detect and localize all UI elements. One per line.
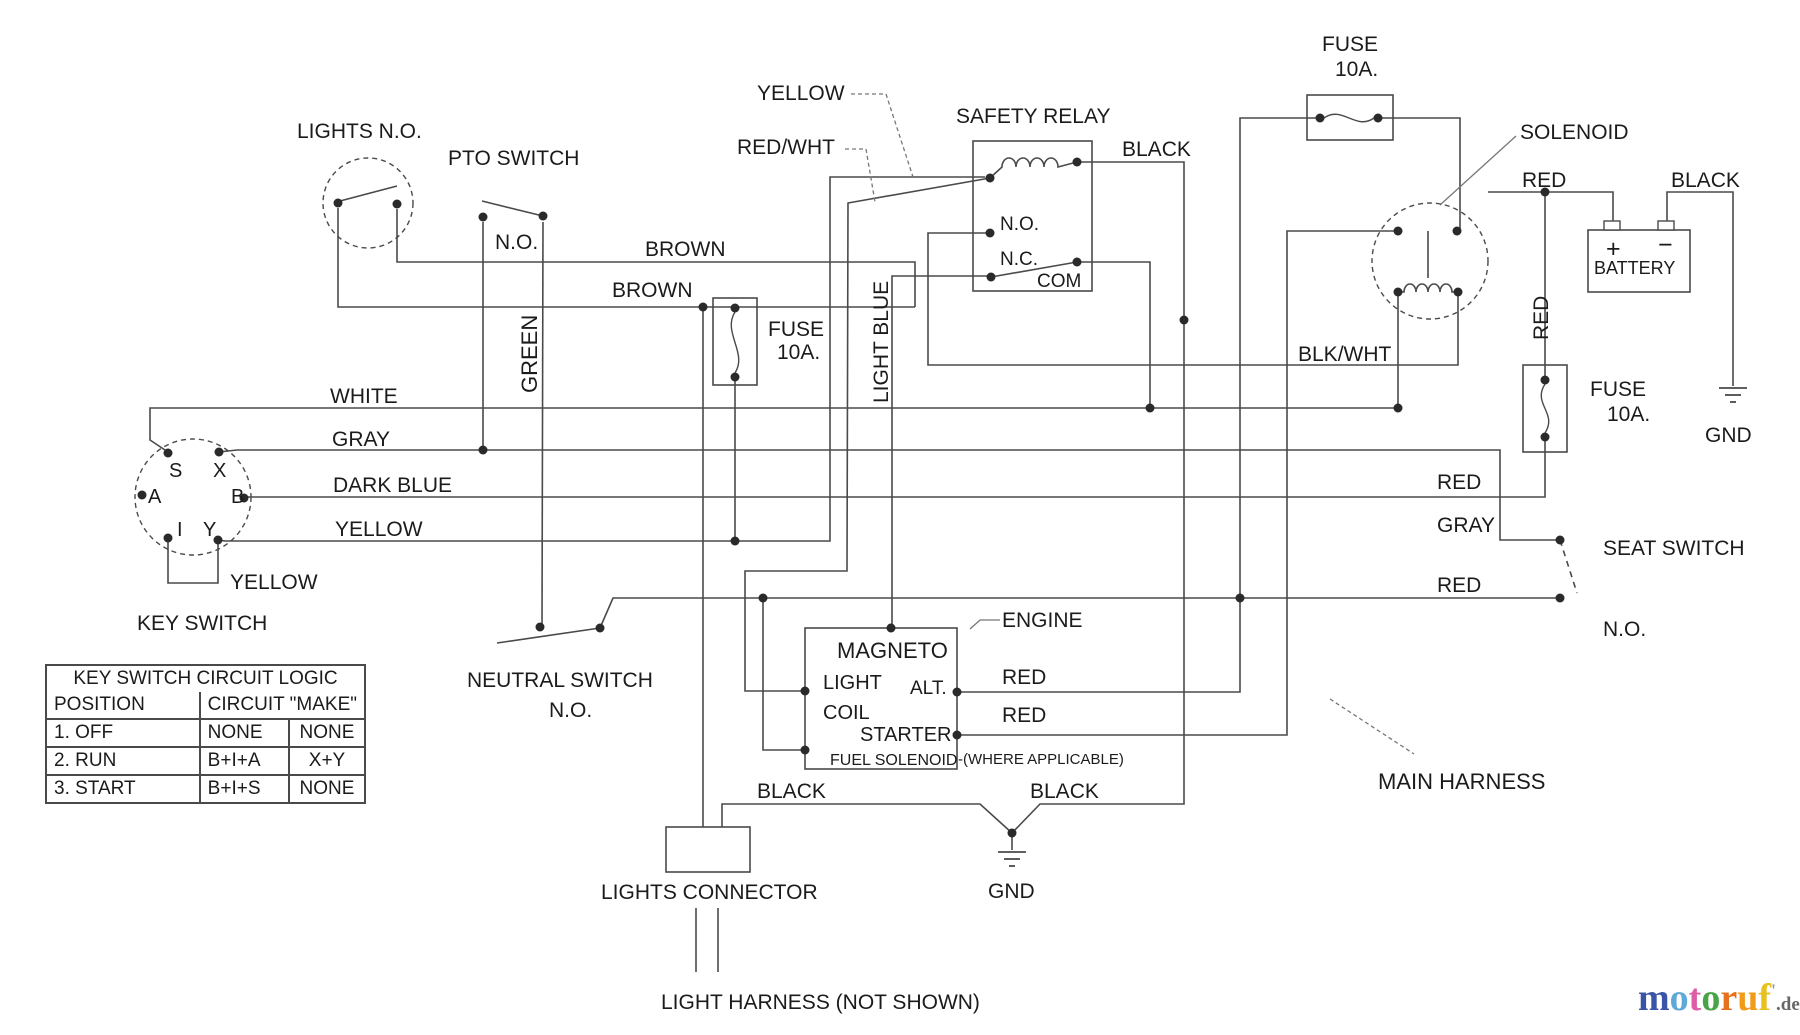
label-key-term-s: S <box>169 460 182 482</box>
label-white: WHITE <box>330 385 398 408</box>
battery-nub-1 <box>1604 221 1620 230</box>
label-black-gnd: BLACK <box>1030 780 1099 803</box>
label-alt: ALT. <box>910 678 947 699</box>
logo-letter: r <box>1720 977 1737 1019</box>
fuse3-element <box>1541 384 1549 433</box>
table-row-2-col-2: B+I+A <box>200 747 289 775</box>
label-black-battery: BLACK <box>1671 169 1740 192</box>
label-gnd-bottom: GND <box>988 880 1035 903</box>
terminal-dot-34 <box>1556 594 1565 603</box>
terminal-dot-7 <box>138 491 147 500</box>
label-fuel-solenoid: FUEL SOLENOID <box>830 752 957 769</box>
seat-switch-arm <box>1560 540 1577 593</box>
label-magneto: MAGNETO <box>837 638 948 663</box>
terminal-dot-43 <box>1008 829 1017 838</box>
terminal-dot-27 <box>1454 288 1463 297</box>
fuse1-element <box>731 312 739 373</box>
label-key-term-b: B <box>231 486 244 508</box>
terminal-dot-36 <box>479 446 488 455</box>
terminal-dot-42 <box>759 594 768 603</box>
label-fuse3-name: FUSE <box>1590 378 1646 401</box>
table-header-position: POSITION <box>46 692 200 719</box>
label-fuse2-name: FUSE <box>1322 33 1378 56</box>
terminal-dot-31 <box>953 688 962 697</box>
yellow-loop-wire <box>168 538 218 583</box>
label-main-harness: MAIN HARNESS <box>1378 769 1545 794</box>
label-key-switch: KEY SWITCH <box>137 612 267 635</box>
label-pto-no: N.O. <box>495 231 538 254</box>
com-drop-wire <box>1077 262 1150 408</box>
logo-letter: f <box>1758 977 1771 1019</box>
label-red-mid: RED <box>1437 471 1481 494</box>
label-engine: ENGINE <box>1002 609 1083 632</box>
label-relay-nc: N.C. <box>1000 249 1038 270</box>
terminal-dot-16 <box>987 273 996 282</box>
label-battery: BATTERY <box>1594 258 1675 278</box>
label-yellow-loop: YELLOW <box>230 571 318 594</box>
table-header-circuit-make: CIRCUIT "MAKE" <box>200 692 365 719</box>
label-gray: GRAY <box>332 428 390 451</box>
label-seat-switch: SEAT SWITCH <box>1603 537 1745 560</box>
terminal-dot-23 <box>1541 433 1550 442</box>
label-light-harness: LIGHT HARNESS (NOT SHOWN) <box>661 991 980 1014</box>
pto-switch-arm <box>482 201 543 216</box>
label-green: GREEN <box>517 315 542 393</box>
label-brown-2: BROWN <box>612 279 693 302</box>
label-relay-black: BLACK <box>1122 138 1191 161</box>
terminal-dot-21 <box>1374 114 1383 123</box>
wiring-diagram-page: LIGHTS N.O.PTO SWITCHN.O.YELLOWRED/WHTSA… <box>0 0 1800 1035</box>
neutral-switch-arm <box>497 628 600 643</box>
table-row-3-col-2: B+I+S <box>200 775 289 803</box>
label-where-applicable: -(WHERE APPLICABLE) <box>958 751 1124 768</box>
label-relay-com: COM <box>1037 271 1081 292</box>
label-lights-connector: LIGHTS CONNECTOR <box>601 881 818 904</box>
terminal-dot-14 <box>1073 158 1082 167</box>
label-key-term-y: Y <box>203 519 216 541</box>
label-key-term-i: I <box>177 519 183 541</box>
label-red-battery: RED <box>1522 169 1566 192</box>
terminal-dot-19 <box>731 373 740 382</box>
site-logo: motoruf'.de <box>1638 976 1800 1020</box>
label-seat-no: N.O. <box>1603 618 1646 641</box>
label-pto-title: PTO SWITCH <box>448 147 579 170</box>
terminal-dot-13 <box>986 174 995 183</box>
terminal-dot-32 <box>953 731 962 740</box>
connector-black-wire <box>722 804 1012 833</box>
table-row-1-col-1: 1. OFF <box>46 719 200 747</box>
terminal-dot-12 <box>596 624 605 633</box>
label-battery-minus: − <box>1658 231 1673 259</box>
terminal-dot-37 <box>731 537 740 546</box>
terminal-dot-18 <box>731 304 740 313</box>
label-neutral-no: N.O. <box>549 699 592 722</box>
terminal-dot-2 <box>393 200 402 209</box>
label-red-vertical: RED <box>1530 296 1553 340</box>
terminal-dot-26 <box>1394 288 1403 297</box>
terminal-dot-5 <box>164 449 173 458</box>
terminal-dot-9 <box>164 534 173 543</box>
terminal-dot-20 <box>1316 114 1325 123</box>
wiring-diagram: LIGHTS N.O.PTO SWITCHN.O.YELLOWRED/WHTSA… <box>0 0 1800 1035</box>
terminal-dot-38 <box>1146 404 1155 413</box>
table-row-2-col-3: X+Y <box>289 747 365 775</box>
lights-connector-box <box>666 827 750 872</box>
terminal-dot-39 <box>1394 404 1403 413</box>
label-dark-blue: DARK BLUE <box>333 474 452 497</box>
green-wire <box>542 222 543 627</box>
solenoid-leader <box>1440 136 1516 205</box>
key-switch-circuit-logic-table: KEY SWITCH CIRCUIT LOGICPOSITIONCIRCUIT … <box>45 664 366 804</box>
table-row-1-col-3: NONE <box>289 719 365 747</box>
engine-leader <box>970 620 1000 629</box>
label-solenoid: SOLENOID <box>1520 121 1629 144</box>
solenoid-top-wire <box>1378 118 1460 231</box>
label-safety-relay: SAFETY RELAY <box>956 105 1110 128</box>
lights-switch-arm <box>340 186 397 201</box>
label-fuse1-name: FUSE <box>768 318 824 341</box>
solenoid-circle <box>1372 203 1488 319</box>
table-row-3-col-3: NONE <box>289 775 365 803</box>
label-red-alt: RED <box>1002 666 1046 689</box>
main-harness-leader <box>1330 699 1414 754</box>
terminal-dot-44 <box>1180 316 1189 325</box>
redwht-wire <box>745 178 990 691</box>
terminal-dot-30 <box>801 746 810 755</box>
terminal-dot-15 <box>986 229 995 238</box>
table-row-2-col-1: 2. RUN <box>46 747 200 775</box>
label-fuse2-amps: 10A. <box>1335 58 1378 81</box>
logo-letter: o <box>1701 977 1720 1019</box>
logo-letter: o <box>1670 977 1689 1019</box>
terminal-dot-41 <box>1236 594 1245 603</box>
yellow-leader <box>851 94 913 177</box>
fuel-solenoid-wire <box>763 598 805 750</box>
logo-domain-suffix: .de <box>1776 994 1800 1015</box>
terminal-dot-3 <box>479 213 488 222</box>
terminal-dot-22 <box>1541 376 1550 385</box>
terminal-dot-4 <box>539 212 548 221</box>
terminal-dot-29 <box>801 687 810 696</box>
terminal-dot-11 <box>536 623 545 632</box>
table-row-1-col-2: NONE <box>200 719 289 747</box>
label-light-blue: LIGHT BLUE <box>870 281 893 403</box>
logo-letter: t <box>1689 977 1702 1019</box>
label-lights-title: LIGHTS N.O. <box>297 120 422 143</box>
label-starter: STARTER <box>860 724 952 746</box>
label-key-term-a: A <box>148 486 162 508</box>
starter-wire <box>957 231 1398 735</box>
terminal-dot-6 <box>215 448 224 457</box>
label-black-lights: BLACK <box>757 780 826 803</box>
table-title: KEY SWITCH CIRCUIT LOGIC <box>46 665 365 692</box>
terminal-dot-33 <box>1556 536 1565 545</box>
redwht-leader <box>845 149 875 202</box>
table-row-3-col-1: 3. START <box>46 775 200 803</box>
label-gnd-right: GND <box>1705 424 1752 447</box>
label-coil: COIL <box>823 702 870 724</box>
label-fuse3-amps: 10A. <box>1607 403 1650 426</box>
label-red-starter: RED <box>1002 704 1046 727</box>
terminal-dot-1 <box>334 199 343 208</box>
label-brown-1: BROWN <box>645 238 726 261</box>
battery-nub-2 <box>1658 221 1674 230</box>
alt-fuse-wire <box>957 118 1320 692</box>
label-gray-seat: GRAY <box>1437 514 1495 537</box>
label-red-wht: RED/WHT <box>737 136 835 159</box>
relay-coil <box>990 158 1077 178</box>
label-yellow-key: YELLOW <box>335 518 423 541</box>
terminal-dot-25 <box>1453 227 1462 236</box>
solenoid-coil <box>1398 284 1458 292</box>
fuse2-element <box>1324 114 1374 122</box>
label-key-term-x: X <box>213 460 226 482</box>
terminal-dot-24 <box>1394 227 1403 236</box>
label-yellow-top: YELLOW <box>757 82 845 105</box>
black-battery-wire <box>1667 192 1733 386</box>
red-battery-wire <box>1488 192 1613 228</box>
label-red-seat: RED <box>1437 574 1481 597</box>
logo-letter: u <box>1737 977 1758 1019</box>
terminal-dot-35 <box>699 303 708 312</box>
label-light: LIGHT <box>823 672 882 694</box>
label-blk-wht: BLK/WHT <box>1298 343 1392 366</box>
terminal-dot-28 <box>887 624 896 633</box>
label-fuse1-amps: 10A. <box>777 341 820 364</box>
label-neutral-switch: NEUTRAL SWITCH <box>467 669 653 692</box>
label-relay-no: N.O. <box>1000 214 1039 235</box>
lightblue-wire <box>892 276 988 628</box>
terminal-dot-17 <box>1073 258 1082 267</box>
logo-letter: m <box>1638 977 1670 1019</box>
